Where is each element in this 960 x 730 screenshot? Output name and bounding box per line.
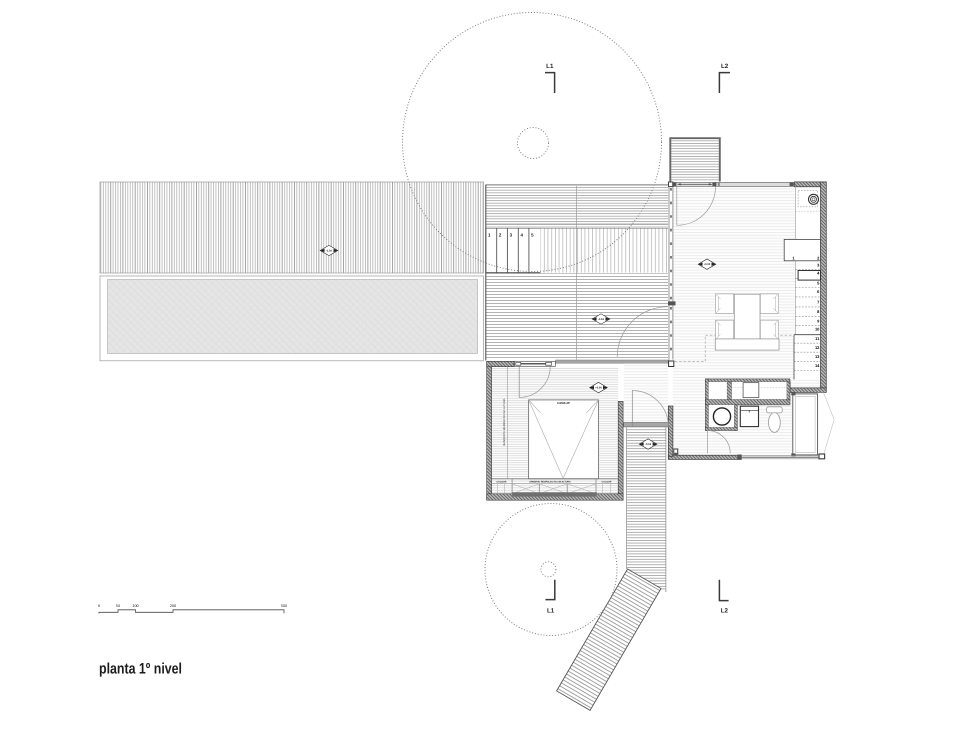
svg-text:200: 200 — [170, 604, 176, 608]
svg-text:L1: L1 — [546, 63, 554, 70]
svg-text:12: 12 — [815, 345, 820, 350]
svg-text:-0.18: -0.18 — [645, 443, 651, 446]
svg-text:14: 14 — [815, 363, 820, 368]
svg-text:-0.16: -0.16 — [598, 318, 604, 321]
svg-text:L2: L2 — [721, 63, 729, 70]
svg-text:ARMARIO RESPALDO 50 CM ALTURA: ARMARIO RESPALDO 50 CM ALTURA — [529, 481, 571, 484]
svg-text:planta 1º nivel: planta 1º nivel — [99, 661, 182, 678]
svg-text:COLGAR: COLGAR — [497, 481, 507, 484]
svg-text:BANQUETA MADERA 50 CM. ALTURA: BANQUETA MADERA 50 CM. ALTURA — [503, 398, 506, 445]
svg-text:500: 500 — [281, 604, 287, 608]
svg-text:13: 13 — [815, 354, 820, 359]
svg-text:CAMA 2P: CAMA 2P — [557, 401, 570, 405]
svg-text:L1: L1 — [547, 608, 555, 615]
svg-text:L2: L2 — [721, 608, 729, 615]
svg-text:0: 0 — [98, 604, 100, 608]
svg-text:100: 100 — [132, 604, 138, 608]
svg-text:-1.02: -1.02 — [326, 250, 332, 253]
svg-text:10: 10 — [815, 327, 820, 332]
svg-text:50: 50 — [116, 604, 120, 608]
svg-text:+0.00: +0.00 — [595, 387, 602, 390]
svg-text:COLGAR: COLGAR — [602, 481, 612, 484]
svg-text:+0.00: +0.00 — [704, 263, 711, 266]
